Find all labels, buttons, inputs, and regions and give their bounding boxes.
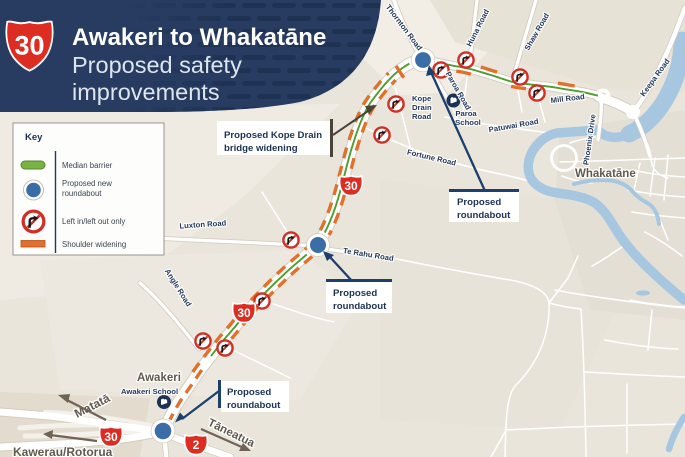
svg-text:Left in/left out only: Left in/left out only <box>62 217 125 226</box>
svg-text:Proposed new: Proposed new <box>62 179 112 188</box>
svg-text:Awakeri to Whakatāne: Awakeri to Whakatāne <box>72 24 326 51</box>
svg-text:2: 2 <box>193 438 200 452</box>
svg-text:roundabout: roundabout <box>333 301 387 312</box>
svg-text:30: 30 <box>344 179 358 193</box>
svg-text:roundabout: roundabout <box>62 189 102 198</box>
svg-text:Paroa: Paroa <box>455 109 477 118</box>
svg-text:improvements: improvements <box>72 79 220 105</box>
svg-text:roundabout: roundabout <box>227 400 281 411</box>
svg-text:Kope: Kope <box>412 94 432 103</box>
svg-text:Awakeri: Awakeri <box>137 372 181 384</box>
svg-text:School: School <box>455 118 481 127</box>
svg-text:Proposed: Proposed <box>457 197 501 208</box>
svg-text:Proposed: Proposed <box>227 387 271 398</box>
svg-text:Road: Road <box>412 112 432 121</box>
svg-text:roundabout: roundabout <box>457 210 511 221</box>
svg-text:Whakatāne: Whakatāne <box>575 168 636 180</box>
svg-text:bridge widening: bridge widening <box>224 143 298 154</box>
svg-text:Key: Key <box>25 132 43 143</box>
svg-text:Shoulder widening: Shoulder widening <box>62 240 126 249</box>
svg-text:30: 30 <box>14 31 44 61</box>
svg-text:Proposed Kope Drain: Proposed Kope Drain <box>224 130 322 141</box>
svg-text:Median barrier: Median barrier <box>62 161 113 170</box>
svg-text:Awakeri School: Awakeri School <box>121 387 178 396</box>
svg-text:Kawerau/Rotorua: Kawerau/Rotorua <box>13 445 113 457</box>
svg-text:Proposed safety: Proposed safety <box>72 52 242 78</box>
svg-text:30: 30 <box>237 306 251 320</box>
svg-text:Proposed: Proposed <box>333 288 377 299</box>
svg-text:Drain: Drain <box>412 103 432 112</box>
svg-text:30: 30 <box>104 430 118 444</box>
